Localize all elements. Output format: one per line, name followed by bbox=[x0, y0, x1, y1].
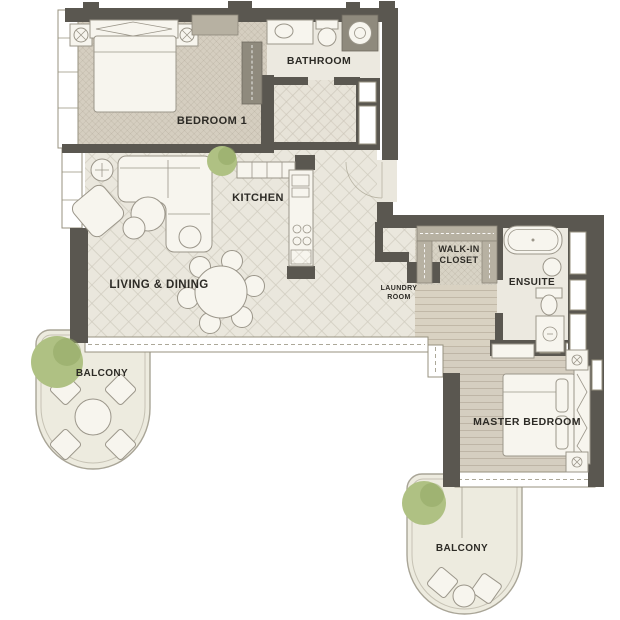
coffee-table-icon bbox=[123, 217, 145, 239]
bathtub-icon bbox=[504, 226, 562, 254]
wall-bedroom1-south bbox=[62, 144, 274, 153]
toilet-icon bbox=[316, 20, 338, 46]
label-living-dining: LIVING & DINING bbox=[109, 279, 208, 291]
floor-plan-drawing: BATHROOM BEDROOM 1 KITCHEN LIVING & DINI… bbox=[0, 0, 620, 620]
side-table-icon bbox=[179, 226, 201, 248]
label-walkin-2: CLOSET bbox=[440, 255, 479, 265]
label-master-bedroom: MASTER BEDROOM bbox=[473, 416, 581, 428]
label-bedroom1: BEDROOM 1 bbox=[177, 115, 247, 127]
nightstand-icon bbox=[566, 452, 588, 472]
bed-icon bbox=[503, 366, 590, 464]
label-bathroom: BATHROOM bbox=[287, 55, 351, 67]
washer-icon bbox=[342, 15, 378, 51]
oven-icon bbox=[291, 250, 311, 264]
label-laundry-2: ROOM bbox=[387, 294, 410, 301]
label-ensuite: ENSUITE bbox=[509, 277, 555, 288]
dresser-icon bbox=[192, 15, 238, 35]
wall-east-bathroom bbox=[382, 8, 398, 160]
dresser-icon bbox=[492, 344, 534, 358]
entry-floor bbox=[377, 160, 397, 202]
sink-icon bbox=[275, 24, 293, 38]
label-walkin-1: WALK-IN bbox=[438, 244, 479, 254]
floor-plan: BATHROOM BEDROOM 1 KITCHEN LIVING & DINI… bbox=[0, 0, 620, 620]
bed-icon bbox=[90, 20, 178, 112]
sink-icon bbox=[543, 258, 561, 276]
kitchen-counter-icon bbox=[237, 162, 295, 178]
plant-icon bbox=[207, 146, 237, 176]
label-balcony-bottom: BALCONY bbox=[436, 543, 488, 554]
master-wardrobe-icon bbox=[443, 373, 460, 487]
shower-icon bbox=[536, 316, 564, 352]
label-laundry-1: LAUNDRY bbox=[381, 285, 418, 292]
label-kitchen: KITCHEN bbox=[232, 192, 284, 204]
nightstand-icon bbox=[566, 350, 588, 370]
plant-icon bbox=[402, 481, 446, 525]
wall-living-west bbox=[70, 228, 88, 343]
label-balcony-left: BALCONY bbox=[76, 368, 128, 379]
plant-icon bbox=[31, 336, 83, 388]
